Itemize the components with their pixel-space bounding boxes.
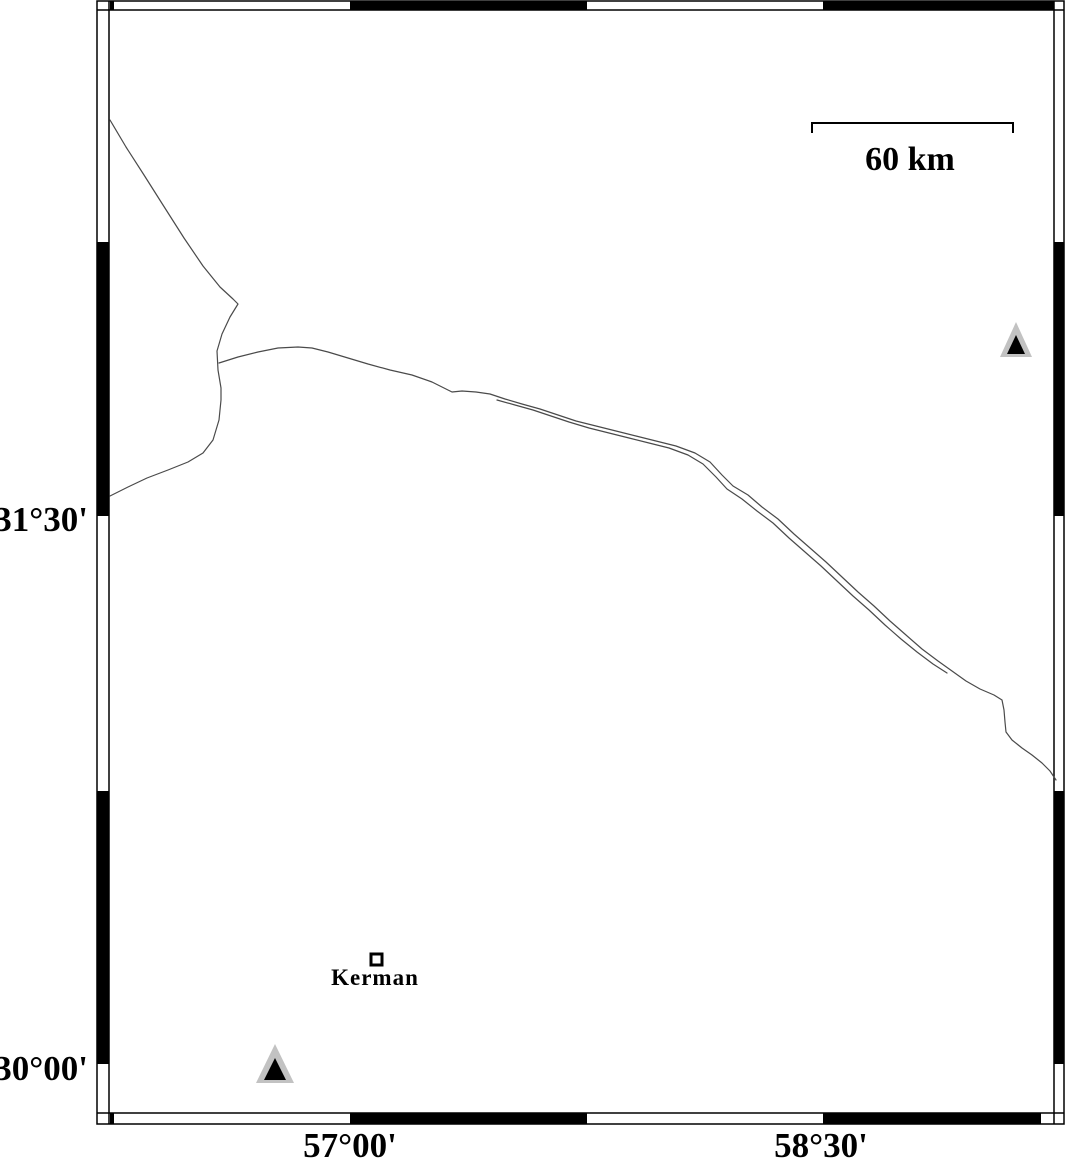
axis-annotations: 31°30' 30°00' 57°00' 58°30' — [0, 500, 868, 1161]
city-marker-kerman: Kerman — [331, 954, 419, 990]
fault-line-main — [219, 347, 1056, 780]
frame-tick-segment — [1054, 242, 1064, 516]
station-triangle-icon-ne — [1000, 322, 1032, 357]
lat-label-upper: 31°30' — [0, 500, 88, 539]
lon-label-left: 57°00' — [303, 1126, 397, 1161]
frame-tick-segment — [110, 1, 114, 10]
map-page: 60 km Kerman 31°30' 30°00' 57°00' 58°30' — [0, 0, 1066, 1161]
lon-label-right: 58°30' — [774, 1126, 868, 1161]
station-triangle-icon-sw — [256, 1044, 294, 1083]
map-linework — [110, 120, 1056, 780]
scale-bar: 60 km — [812, 123, 1013, 178]
frame-tick-segment — [350, 1, 587, 10]
fault-line-west — [110, 120, 238, 496]
city-label: Kerman — [331, 965, 419, 990]
frame-tick-segment — [823, 1, 1054, 10]
frame-tick-segment — [110, 1113, 114, 1124]
lat-label-lower: 30°00' — [0, 1049, 88, 1088]
frame-tick-segment — [823, 1113, 1041, 1124]
frame-tick-segment — [1054, 791, 1064, 1064]
frame-tick-segment — [97, 791, 109, 1064]
scale-bar-label: 60 km — [865, 141, 955, 178]
frame-tick-segment — [97, 242, 109, 516]
frame-tick-segment — [350, 1113, 587, 1124]
scale-bar-line — [812, 123, 1013, 133]
fault-line-strand — [497, 400, 947, 673]
map-canvas: 60 km Kerman 31°30' 30°00' 57°00' 58°30' — [0, 0, 1066, 1161]
city-square-icon — [371, 954, 382, 965]
